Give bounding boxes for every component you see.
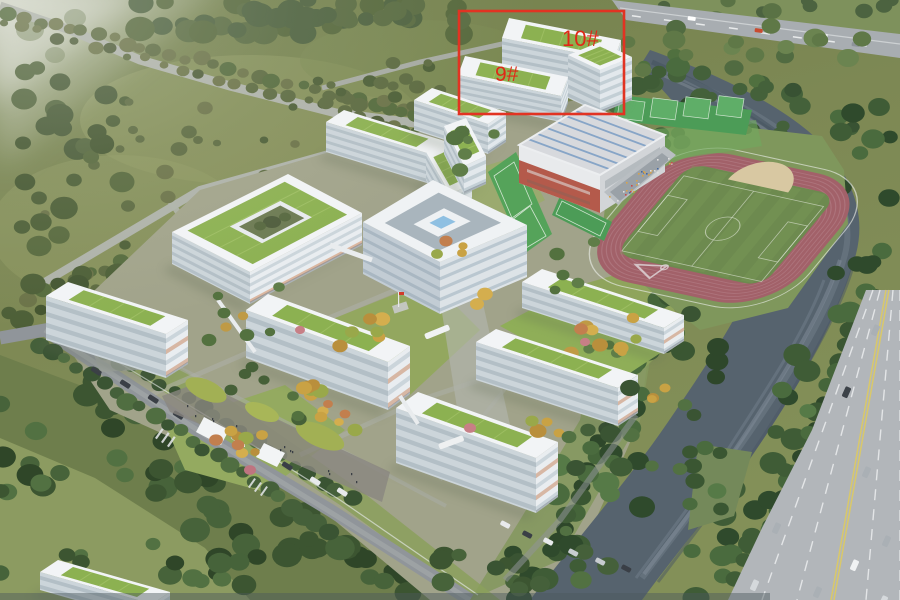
svg-text:9#: 9#	[495, 63, 519, 86]
svg-text:10#: 10#	[562, 26, 599, 51]
